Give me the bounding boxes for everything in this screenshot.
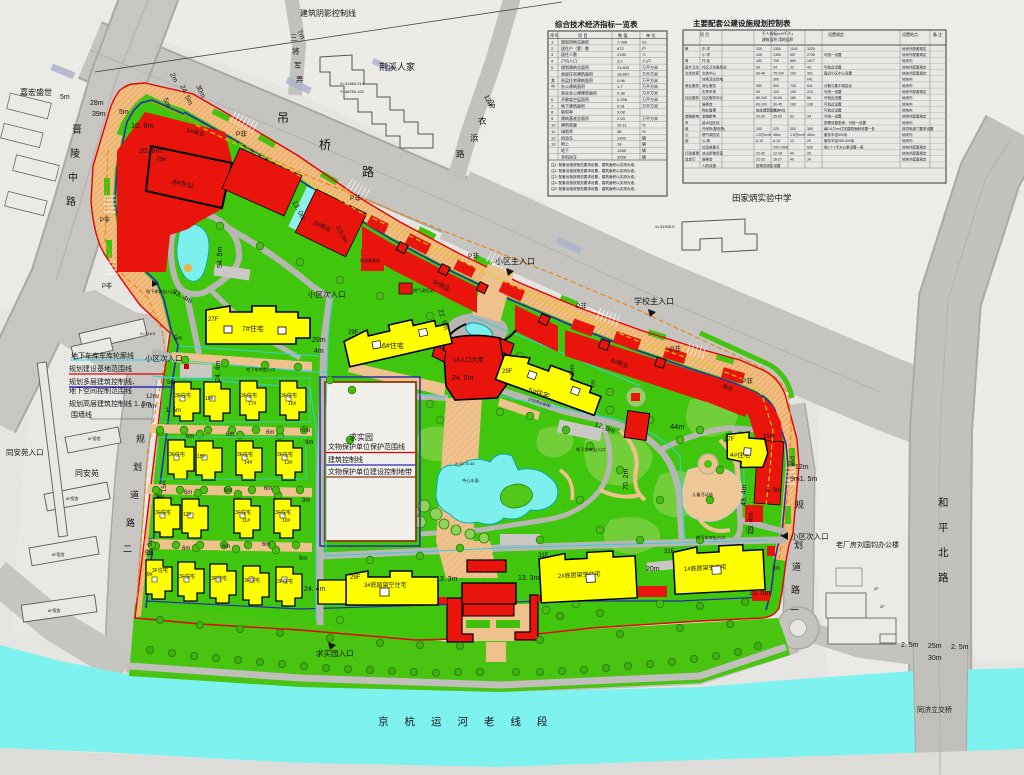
- svg-text:100: 100: [756, 127, 762, 131]
- svg-text:29F: 29F: [350, 575, 361, 581]
- svg-text:可就近设置: 可就近设置: [824, 95, 842, 100]
- svg-text:190: 190: [790, 90, 796, 94]
- svg-text:同安苑入口: 同安苑入口: [6, 447, 44, 457]
- svg-text:路: 路: [938, 571, 949, 584]
- svg-text:地块外配套规定: 地块外配套规定: [902, 144, 927, 149]
- svg-text:数 值: 数 值: [618, 32, 628, 39]
- svg-text:40: 40: [790, 152, 794, 156]
- svg-text:备 注: 备 注: [933, 31, 942, 37]
- svg-text:辆: 辆: [642, 134, 646, 140]
- svg-text:地块内: 地块内: [902, 132, 913, 137]
- svg-text:注5. 配套设施按规范要求设置，建筑面积以实测为准。: 注5. 配套设施按规范要求设置，建筑面积以实测为准。: [551, 186, 638, 191]
- svg-text:P非: P非: [236, 129, 247, 138]
- svg-text:100: 100: [790, 72, 796, 76]
- svg-text:9.91: 9.91: [617, 103, 626, 108]
- svg-text:20. 6m: 20. 6m: [139, 146, 162, 155]
- svg-text:X=31905.5: X=31905.5: [655, 224, 675, 229]
- svg-text:嘉宏盛世: 嘉宏盛世: [20, 87, 52, 97]
- svg-text:千人指标(m²/千人): 千人指标(m²/千人): [762, 31, 794, 36]
- svg-text:金融邮电: 金融邮电: [685, 114, 699, 119]
- svg-text:可就近设置: 可就近设置: [824, 108, 842, 113]
- svg-text:容积率: 容积率: [561, 109, 573, 115]
- svg-text:农贸市场: 农贸市场: [702, 89, 716, 94]
- svg-text:200-1000: 200-1000: [773, 145, 788, 149]
- svg-text:社区服务: 社区服务: [685, 95, 699, 100]
- svg-text:24. 4m: 24. 4m: [304, 586, 326, 593]
- svg-text:15m: 15m: [162, 480, 168, 492]
- svg-text:43: 43: [807, 65, 811, 69]
- svg-text:3F住宅: 3F住宅: [155, 509, 171, 516]
- svg-text:3F住宅: 3F住宅: [235, 509, 251, 516]
- svg-text:7.786: 7.786: [617, 39, 628, 44]
- svg-text:晋: 晋: [72, 124, 82, 136]
- svg-text:中 学: 中 学: [702, 46, 710, 51]
- svg-text:860: 860: [790, 59, 796, 63]
- svg-text:22-32: 22-32: [756, 152, 765, 156]
- svg-text:建筑阴影控制线: 建筑阴影控制线: [300, 8, 356, 18]
- svg-text:行政管理: 行政管理: [685, 151, 699, 156]
- svg-text:同济立交桥: 同济立交桥: [917, 705, 952, 714]
- svg-text:万平方米: 万平方米: [642, 70, 658, 76]
- svg-text:地上: 地上: [561, 141, 569, 147]
- svg-text:6m: 6m: [266, 430, 274, 436]
- svg-text:48m²: 48m²: [807, 133, 816, 137]
- svg-text:5m: 5m: [174, 336, 182, 342]
- svg-text:630: 630: [807, 145, 813, 149]
- svg-text:规: 规: [136, 434, 145, 444]
- svg-text:按总建筑面积3%设: 按总建筑面积3%设: [756, 108, 786, 113]
- svg-text:13. 3m: 13. 3m: [518, 575, 540, 582]
- svg-text:划: 划: [133, 461, 142, 472]
- svg-text:P非: P非: [102, 282, 112, 290]
- svg-text:服务半径500米: 服务半径500米: [824, 132, 848, 137]
- svg-text:地块内: 地块内: [902, 138, 913, 143]
- svg-text:12m: 12m: [795, 464, 809, 471]
- svg-text:48m²: 48m²: [773, 133, 782, 137]
- svg-text:P非: P非: [742, 376, 753, 385]
- svg-text:20-30: 20-30: [756, 115, 765, 119]
- svg-text:设置规定: 设置规定: [828, 31, 844, 37]
- svg-text:一: 一: [790, 605, 799, 615]
- svg-text:672: 672: [617, 46, 624, 51]
- svg-text:62: 62: [790, 115, 794, 119]
- svg-text:700: 700: [773, 59, 779, 63]
- svg-text:居委会: 居委会: [702, 101, 713, 106]
- svg-text:公: 公: [685, 132, 689, 137]
- svg-text:小 学: 小 学: [702, 52, 710, 57]
- svg-text:300: 300: [773, 78, 779, 82]
- svg-text:陵: 陵: [70, 148, 80, 160]
- svg-text:3258: 3258: [617, 155, 627, 160]
- svg-text:31F: 31F: [664, 549, 675, 555]
- svg-text:2. 5m: 2. 5m: [951, 644, 969, 651]
- svg-text:957: 957: [790, 53, 796, 57]
- svg-text:居住户（套）数: 居住户（套）数: [561, 45, 589, 51]
- svg-text:40: 40: [790, 158, 794, 162]
- svg-text:25m: 25m: [928, 643, 942, 650]
- svg-text:可就近设置: 可就近设置: [824, 101, 842, 106]
- svg-text:18.867: 18.867: [617, 71, 630, 76]
- svg-text:29F: 29F: [502, 369, 513, 375]
- svg-text:燃气调压站: 燃气调压站: [413, 287, 434, 294]
- svg-text:23.803: 23.803: [617, 65, 630, 70]
- svg-text:靠近小区中心设置: 靠近小区中心设置: [824, 71, 852, 76]
- svg-text:辆: 辆: [642, 154, 646, 160]
- svg-text:规划建设基地范围线: 规划建设基地范围线: [69, 364, 132, 373]
- svg-text:万平方米: 万平方米: [642, 77, 658, 83]
- svg-text:建筑面积 用地面积: 建筑面积 用地面积: [762, 37, 794, 42]
- svg-text:44m: 44m: [670, 422, 685, 431]
- svg-text:每0.6万m²住宅建筑面积设置一处: 每0.6万m²住宅建筑面积设置一处: [824, 126, 875, 131]
- svg-text:13: 13: [790, 139, 794, 143]
- svg-text:6F宿舍: 6F宿舍: [88, 435, 101, 441]
- svg-text:28m: 28m: [90, 100, 104, 107]
- svg-text:规划用地总面积: 规划用地总面积: [561, 38, 589, 44]
- svg-text:辆: 辆: [642, 141, 646, 147]
- svg-text:12#: 12#: [183, 512, 192, 518]
- svg-text:地块内: 地块内: [902, 77, 913, 82]
- svg-text:机动车: 机动车: [561, 134, 573, 140]
- svg-text:地块外配套规定: 地块外配套规定: [902, 71, 927, 76]
- svg-text:P非: P非: [468, 251, 479, 260]
- svg-text:6m: 6m: [262, 542, 270, 548]
- svg-text:万平方米: 万平方米: [642, 115, 658, 121]
- svg-text:路: 路: [791, 584, 800, 595]
- svg-text:教: 教: [685, 46, 689, 51]
- svg-text:9m1. 5m: 9m1. 5m: [790, 476, 817, 483]
- svg-text:6F宿舍: 6F宿舍: [52, 551, 65, 557]
- svg-text:地下车库出入口: 地下车库出入口: [696, 534, 725, 541]
- svg-text:建筑密度: 建筑密度: [561, 122, 577, 128]
- svg-text:地块外配套规定: 地块外配套规定: [902, 89, 927, 94]
- svg-text:人/户: 人/户: [642, 58, 651, 64]
- svg-text:地块外配套规定: 地块外配套规定: [902, 64, 927, 69]
- svg-text:万平方米: 万平方米: [642, 96, 658, 102]
- svg-text:5m: 5m: [156, 495, 164, 501]
- svg-text:2F: 2F: [880, 604, 885, 609]
- svg-text:641: 641: [807, 84, 813, 88]
- svg-text:14#: 14#: [244, 460, 253, 466]
- svg-text:80-100: 80-100: [756, 102, 767, 106]
- svg-text:体育活动场地: 体育活动场地: [702, 77, 723, 82]
- svg-text:医疗卫生: 医疗卫生: [685, 64, 699, 69]
- svg-text:地块内: 地块内: [902, 108, 913, 113]
- svg-text:社区卫生服务站: 社区卫生服务站: [702, 64, 727, 69]
- svg-text:育: 育: [685, 58, 689, 63]
- svg-text:规: 规: [795, 500, 804, 510]
- svg-text:31F: 31F: [538, 553, 549, 559]
- svg-text:规划高层建筑控制线 1. 5m: 规划高层建筑控制线 1. 5m: [69, 399, 152, 408]
- svg-text:43. 4m: 43. 4m: [741, 484, 748, 506]
- svg-text:2F: 2F: [874, 586, 879, 591]
- svg-text:可就近设置: 可就近设置: [824, 64, 842, 69]
- svg-text:物业管理: 物业管理: [702, 108, 716, 113]
- svg-text:6m: 6m: [302, 428, 310, 434]
- svg-text:可统一设置: 可统一设置: [824, 52, 842, 57]
- svg-text:弄: 弄: [296, 75, 304, 84]
- svg-text:1#入口大堂: 1#入口大堂: [453, 356, 484, 364]
- svg-text:3m: 3m: [772, 566, 780, 572]
- svg-text:规划多层建筑控制线、: 规划多层建筑控制线、: [69, 377, 139, 386]
- svg-text:垃圾收集点: 垃圾收集点: [702, 144, 720, 149]
- svg-text:1677: 1677: [807, 59, 815, 63]
- svg-text:1285: 1285: [617, 148, 627, 153]
- svg-text:绿地率: 绿地率: [561, 128, 573, 134]
- svg-text:1137: 1137: [773, 109, 781, 113]
- svg-text:108: 108: [807, 102, 813, 106]
- svg-text:将: 将: [292, 46, 300, 56]
- svg-text:301: 301: [807, 72, 813, 76]
- svg-text:求实园: 求实园: [349, 432, 373, 442]
- svg-text:户均人口: 户均人口: [561, 58, 577, 64]
- svg-text:商业服务: 商业服务: [702, 83, 716, 88]
- svg-text:24. 4m: 24. 4m: [215, 360, 222, 382]
- svg-text:350: 350: [756, 84, 762, 88]
- svg-text:政: 政: [685, 126, 689, 131]
- svg-text:5m: 5m: [60, 94, 70, 101]
- svg-text:214: 214: [807, 90, 813, 94]
- svg-text:社区服务中心: 社区服务中心: [702, 95, 723, 100]
- svg-text:注1. 配套设施按规范要求设置，建筑面积以实测为准。: 注1. 配套设施按规范要求设置，建筑面积以实测为准。: [551, 162, 638, 167]
- svg-text:3F住宅: 3F住宅: [277, 578, 293, 585]
- svg-text:11#: 11#: [242, 518, 250, 524]
- svg-text:浜: 浜: [470, 133, 479, 143]
- svg-text:2. 5m: 2. 5m: [901, 642, 919, 649]
- svg-text:75-100: 75-100: [773, 72, 784, 76]
- svg-text:34: 34: [807, 115, 811, 119]
- svg-text:641: 641: [807, 78, 813, 82]
- svg-text:围墙线: 围墙线: [71, 410, 92, 419]
- svg-text:445: 445: [756, 53, 762, 57]
- svg-text:2.38: 2.38: [617, 91, 626, 96]
- svg-text:20m: 20m: [312, 337, 326, 344]
- svg-text:X=318.5: X=318.5: [140, 331, 156, 336]
- svg-text:300: 300: [790, 127, 796, 131]
- svg-text:300: 300: [773, 84, 779, 88]
- svg-text:26.11: 26.11: [617, 123, 627, 128]
- svg-text:18-27: 18-27: [773, 158, 782, 162]
- svg-text:1.5万m³/h: 1.5万m³/h: [790, 133, 805, 137]
- svg-text:按需设置泵房，可统一设置: 按需设置泵房，可统一设置: [824, 120, 866, 125]
- svg-text:6m: 6m: [182, 546, 190, 552]
- svg-text:小区主入口: 小区主入口: [495, 256, 535, 266]
- svg-text:5. 3m: 5. 3m: [766, 488, 781, 494]
- svg-text:求实园入口: 求实园入口: [316, 648, 354, 658]
- svg-text:0.296: 0.296: [617, 97, 628, 102]
- svg-text:分散与集中相结合: 分散与集中相结合: [824, 83, 852, 88]
- svg-text:7#住宅: 7#住宅: [242, 324, 264, 333]
- svg-text:9m: 9m: [299, 556, 307, 562]
- svg-text:7m: 7m: [591, 380, 597, 388]
- svg-text:9m: 9m: [305, 440, 313, 446]
- svg-text:3F住宅: 3F住宅: [179, 573, 195, 580]
- svg-text:30-45: 30-45: [756, 72, 765, 76]
- svg-text:P非: P非: [670, 344, 681, 353]
- svg-text:居委会: 居委会: [702, 157, 713, 162]
- svg-text:1300: 1300: [773, 53, 781, 57]
- svg-text:辆: 辆: [642, 147, 646, 153]
- svg-text:10. 8m: 10. 8m: [131, 121, 154, 130]
- svg-text:25. 4m: 25. 4m: [748, 512, 755, 534]
- svg-text:地块外配套规定: 地块外配套规定: [902, 52, 927, 57]
- svg-text:180: 180: [790, 96, 796, 100]
- svg-text:27F: 27F: [724, 437, 735, 443]
- svg-text:开敞架空层面积: 开敞架空层面积: [561, 96, 589, 102]
- svg-text:荆溪人家: 荆溪人家: [379, 61, 415, 72]
- svg-text:学校主入口: 学校主入口: [634, 296, 674, 306]
- svg-text:%: %: [642, 123, 646, 128]
- svg-text:10#: 10#: [282, 518, 291, 524]
- svg-text:燃气调压站: 燃气调压站: [702, 132, 720, 137]
- svg-text:6-13: 6-13: [773, 139, 780, 143]
- svg-text:120: 120: [773, 127, 779, 131]
- svg-text:3F住宅: 3F住宅: [275, 509, 291, 516]
- svg-text:文体中心: 文体中心: [702, 71, 716, 76]
- svg-text:注2. 配套设施按规范要求设置，建筑面积以实测为准。: 注2. 配套设施按规范要求设置，建筑面积以实测为准。: [551, 168, 638, 173]
- svg-text:P非: P非: [576, 301, 587, 310]
- svg-text:25-50: 25-50: [773, 115, 782, 119]
- svg-text:老厂房刘国钧办公楼: 老厂房刘国钧办公楼: [836, 540, 899, 549]
- svg-text:6m: 6m: [222, 544, 230, 550]
- svg-text:服务半径250-400米: 服务半径250-400米: [824, 138, 855, 143]
- svg-text:15m: 15m: [763, 434, 775, 440]
- svg-text:可统一设置: 可统一设置: [824, 114, 842, 119]
- svg-text:其: 其: [551, 78, 555, 83]
- svg-text:100: 100: [773, 90, 779, 94]
- svg-text:Y=48750.102: Y=48750.102: [340, 89, 365, 94]
- svg-text:X=31960.214: X=31960.214: [340, 81, 365, 86]
- svg-text:地下车库车库轮廓线: 地下车库车库轮廓线: [71, 351, 134, 360]
- svg-text:16m: 16m: [570, 364, 576, 376]
- svg-text:12m: 12m: [146, 394, 158, 400]
- svg-text:商业服务: 商业服务: [685, 83, 699, 88]
- svg-text:6F宿舍: 6F宿舍: [66, 495, 79, 501]
- svg-text:86: 86: [807, 96, 811, 100]
- svg-text:商业及公建建筑面积: 商业及公建建筑面积: [561, 90, 597, 96]
- svg-text:18: 18: [617, 142, 622, 147]
- svg-text:18#: 18#: [205, 396, 214, 402]
- svg-text:3F住宅: 3F住宅: [237, 451, 253, 458]
- svg-text:地块内: 地块内: [902, 101, 913, 106]
- svg-text:3225: 3225: [807, 47, 815, 51]
- svg-text:6#住宅: 6#住宅: [382, 341, 404, 350]
- svg-text:1.7: 1.7: [617, 84, 623, 89]
- svg-text:中: 中: [551, 83, 555, 89]
- svg-text:2795: 2795: [807, 53, 815, 57]
- svg-text:综合技术经济指标一览表: 综合技术经济指标一览表: [555, 19, 638, 29]
- svg-text:22-32: 22-32: [756, 158, 765, 162]
- svg-text:1.5万m³/h: 1.5万m³/h: [756, 133, 771, 137]
- svg-text:人: 人: [642, 52, 646, 57]
- svg-text:430: 430: [756, 59, 762, 63]
- svg-text:4m: 4m: [314, 348, 324, 355]
- svg-text:儿童活动场: 儿童活动场: [692, 491, 713, 498]
- svg-text:6m: 6m: [224, 488, 232, 494]
- svg-text:同安苑: 同安苑: [75, 468, 99, 478]
- svg-text:29F: 29F: [348, 330, 359, 336]
- svg-text:地下: 地下: [561, 147, 569, 153]
- svg-text:桥: 桥: [319, 138, 331, 152]
- svg-text:3F住宅: 3F住宅: [152, 567, 168, 574]
- svg-text:733: 733: [790, 84, 796, 88]
- svg-text:公 厕: 公 厕: [702, 138, 710, 143]
- svg-text:路: 路: [456, 149, 465, 159]
- svg-text:万平方米: 万平方米: [642, 90, 658, 96]
- svg-text:及其它: 及其它: [685, 157, 696, 162]
- svg-text:3.08: 3.08: [617, 110, 626, 115]
- svg-text:1140: 1140: [790, 47, 798, 51]
- svg-text:5m: 5m: [145, 551, 153, 557]
- svg-text:衣: 衣: [478, 116, 487, 126]
- svg-text:ha: ha: [642, 39, 647, 44]
- svg-text:6-10: 6-10: [756, 139, 763, 143]
- svg-text:24. 5m: 24. 5m: [452, 375, 474, 382]
- svg-text:田家炳实验中学: 田家炳实验中学: [732, 193, 792, 203]
- svg-text:项 目: 项 目: [700, 31, 709, 37]
- svg-text:17#: 17#: [248, 401, 257, 407]
- svg-text:30-45: 30-45: [773, 102, 782, 106]
- svg-text:垃圾收集站: 垃圾收集站: [360, 257, 380, 263]
- svg-text:平: 平: [938, 522, 949, 534]
- svg-text:90: 90: [756, 90, 760, 94]
- svg-text:10: 10: [551, 123, 556, 128]
- svg-text:路: 路: [362, 164, 374, 179]
- svg-text:24: 24: [773, 65, 777, 69]
- svg-text:2.03: 2.03: [617, 116, 626, 121]
- svg-text:3F住宅: 3F住宅: [169, 451, 185, 458]
- svg-text:30m: 30m: [928, 655, 942, 662]
- svg-text:3F住宅: 3F住宅: [277, 451, 293, 458]
- svg-text:小区次入口: 小区次入口: [308, 289, 346, 299]
- svg-text:1300: 1300: [773, 47, 781, 51]
- svg-text:注4. 配套设施按规范要求设置，建筑面积以实测为准。: 注4. 配套设施按规范要求设置，建筑面积以实测为准。: [551, 180, 638, 185]
- svg-text:道: 道: [792, 561, 801, 572]
- svg-text:6m: 6m: [226, 432, 234, 438]
- svg-text:办公建筑面积: 办公建筑面积: [561, 83, 585, 89]
- svg-text:1303: 1303: [617, 135, 627, 140]
- svg-text:道: 道: [130, 489, 139, 500]
- svg-text:给水加压站: 给水加压站: [702, 120, 720, 125]
- svg-text:39m: 39m: [92, 111, 106, 118]
- svg-text:按供电部门要求设置: 按供电部门要求设置: [902, 126, 934, 131]
- svg-text:3.2: 3.2: [617, 59, 623, 64]
- svg-text:地块内: 地块内: [902, 95, 913, 100]
- svg-text:每0.7-1平方公里设置一座: 每0.7-1平方公里设置一座: [824, 144, 864, 149]
- svg-text:金融邮电: 金融邮电: [702, 114, 716, 119]
- svg-text:地下车库出入口: 地下车库出入口: [576, 446, 605, 453]
- svg-text:北: 北: [938, 547, 949, 559]
- svg-text:市: 市: [685, 120, 689, 125]
- svg-text:6F宿舍: 6F宿舍: [48, 607, 61, 613]
- svg-text:可统一设置: 可统一设置: [824, 89, 842, 94]
- svg-text:注3. 配套设施按规范要求设置，建筑面积以实测为准。: 注3. 配套设施按规范要求设置，建筑面积以实测为准。: [551, 174, 638, 179]
- svg-text:设置地点: 设置地点: [902, 31, 918, 37]
- svg-text:40-60: 40-60: [773, 96, 782, 100]
- svg-text:20: 20: [807, 139, 811, 143]
- svg-text:3F住宅: 3F住宅: [281, 392, 297, 399]
- svg-text:开闭所(配电所): 开闭所(配电所): [702, 126, 725, 131]
- svg-text:12-18: 12-18: [773, 152, 782, 156]
- svg-text:建筑基底总面积: 建筑基底总面积: [561, 115, 589, 121]
- svg-text:居住人数: 居住人数: [561, 51, 577, 57]
- svg-text:地块外配套规定: 地块外配套规定: [902, 114, 927, 119]
- svg-text:13: 13: [551, 142, 556, 147]
- svg-text:3F住宅: 3F住宅: [241, 392, 257, 399]
- svg-text:6m: 6m: [184, 490, 192, 496]
- svg-text:托 幼: 托 幼: [702, 58, 710, 63]
- svg-text:单 位: 单 位: [646, 32, 656, 39]
- svg-text:规划建筑总面积: 规划建筑总面积: [561, 64, 589, 70]
